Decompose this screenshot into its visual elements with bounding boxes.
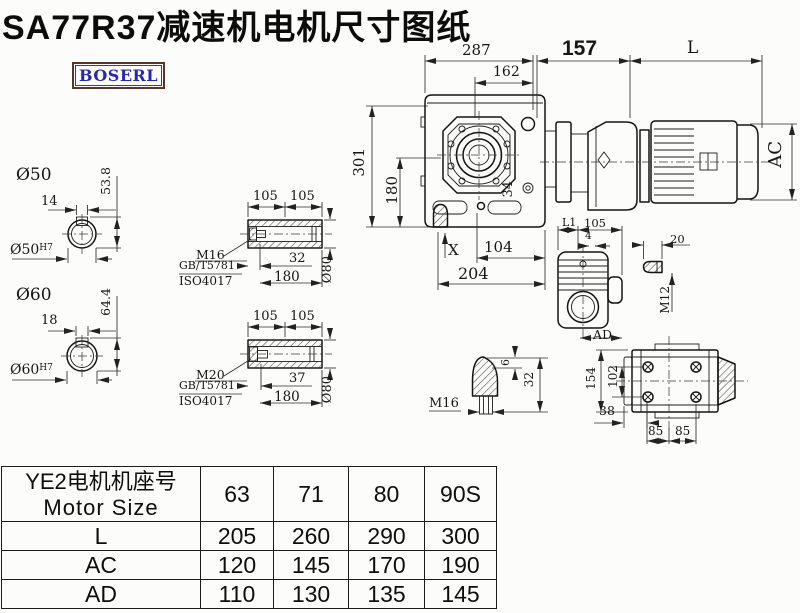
dim-s1-105b: 105 [290,190,315,204]
dim-key14: 14 [41,195,58,209]
motor-size-table: YE2电机机座号 Motor Size 63 71 80 90S L 205 2… [1,466,497,609]
table-cell: 260 [274,522,349,551]
dim-AC: AC [767,141,786,168]
dim-34: 34 [502,181,516,198]
dim-301: 301 [352,148,368,177]
table-cell: 135 [349,580,425,609]
dim-s2-dia80: Ø80 [321,376,335,403]
dim-breather-32: 32 [523,372,536,387]
dim-85a: 85 [648,425,663,438]
motor-assembly-view [540,121,772,210]
table-col-80: 80 [349,467,425,522]
drawing-sheet: SA77R37减速机电机尺寸图纸 BOSERL [0,0,800,613]
dim-L: L [687,40,698,58]
dim-162: 162 [493,65,520,80]
dim-s1-180: 180 [274,270,300,284]
dim-64-4: 64.4 [99,288,112,316]
table-cell: 145 [425,580,497,609]
dim-side-4: 4 [585,231,592,242]
table-row-AD: AD 110 130 135 145 [2,580,497,609]
dim-s2-105b: 105 [290,310,315,324]
dim-85b: 85 [675,425,690,438]
dim-pin-20: 20 [670,233,685,245]
table-cell: 190 [425,551,497,580]
dim-x-mark: X [448,243,459,259]
table-cell: 120 [201,551,274,580]
table-col-90S: 90S [425,467,497,522]
label-s1-std1: GB/T5781 [179,260,235,272]
dim-s1-dia80: Ø80 [321,256,335,283]
label-s2-std2: ISO4017 [179,395,232,408]
gearbox-rear-view [594,336,748,444]
dim-38: 38 [599,404,615,417]
dim-s1-105a: 105 [253,190,278,204]
dim-AD: AD [593,328,612,341]
dim-154: 154 [585,367,598,390]
table-col-63: 63 [201,467,274,522]
table-row-L: L 205 260 290 300 [2,522,497,551]
label-s2-std1: GB/T5781 [179,380,235,392]
label-breather-M16: M16 [429,397,459,411]
dim-bore60: Ø60H7 [10,363,53,378]
dim-breather-6: 6 [500,359,512,366]
gearbox-front-view [421,95,545,227]
dim-s2-37: 37 [289,372,306,386]
dim-s1-32: 32 [289,252,306,266]
table-cell: 110 [201,580,274,609]
dim-204: 204 [458,266,489,283]
dim-104: 104 [484,240,513,256]
table-cell: 130 [274,580,349,609]
dim-180-front: 180 [385,176,401,205]
label-shaft50: Ø50 [16,167,52,185]
label-shaft60: Ø60 [16,287,52,305]
dim-157: 157 [562,38,597,60]
table-cell: 145 [274,551,349,580]
table-cell: 170 [349,551,425,580]
table-header-row: YE2电机机座号 Motor Size 63 71 80 90S [2,467,497,522]
table-cell: 205 [201,522,274,551]
dim-s2-180: 180 [274,390,300,404]
table-col-71: 71 [274,467,349,522]
dim-L1: L1 [562,217,576,229]
dim-s2-105a: 105 [253,310,278,324]
label-s1-std2: ISO4017 [179,275,232,288]
label-pin-M12: M12 [659,286,672,314]
row-label-AD: AD [2,580,201,609]
table-cell: 300 [425,522,497,551]
table-cell: 290 [349,522,425,551]
dim-102: 102 [607,365,620,388]
dim-key18: 18 [41,314,58,328]
dim-287: 287 [462,43,491,59]
dim-side-105: 105 [584,217,606,229]
gearbox-side-view [558,226,622,340]
table-row-AC: AC 120 145 170 190 [2,551,497,580]
row-label-L: L [2,522,201,551]
table-header-motor-size: YE2电机机座号 Motor Size [2,467,201,522]
dim-53-8: 53.8 [99,167,112,195]
dim-bore50: Ø50H7 [10,243,53,258]
row-label-AC: AC [2,551,201,580]
